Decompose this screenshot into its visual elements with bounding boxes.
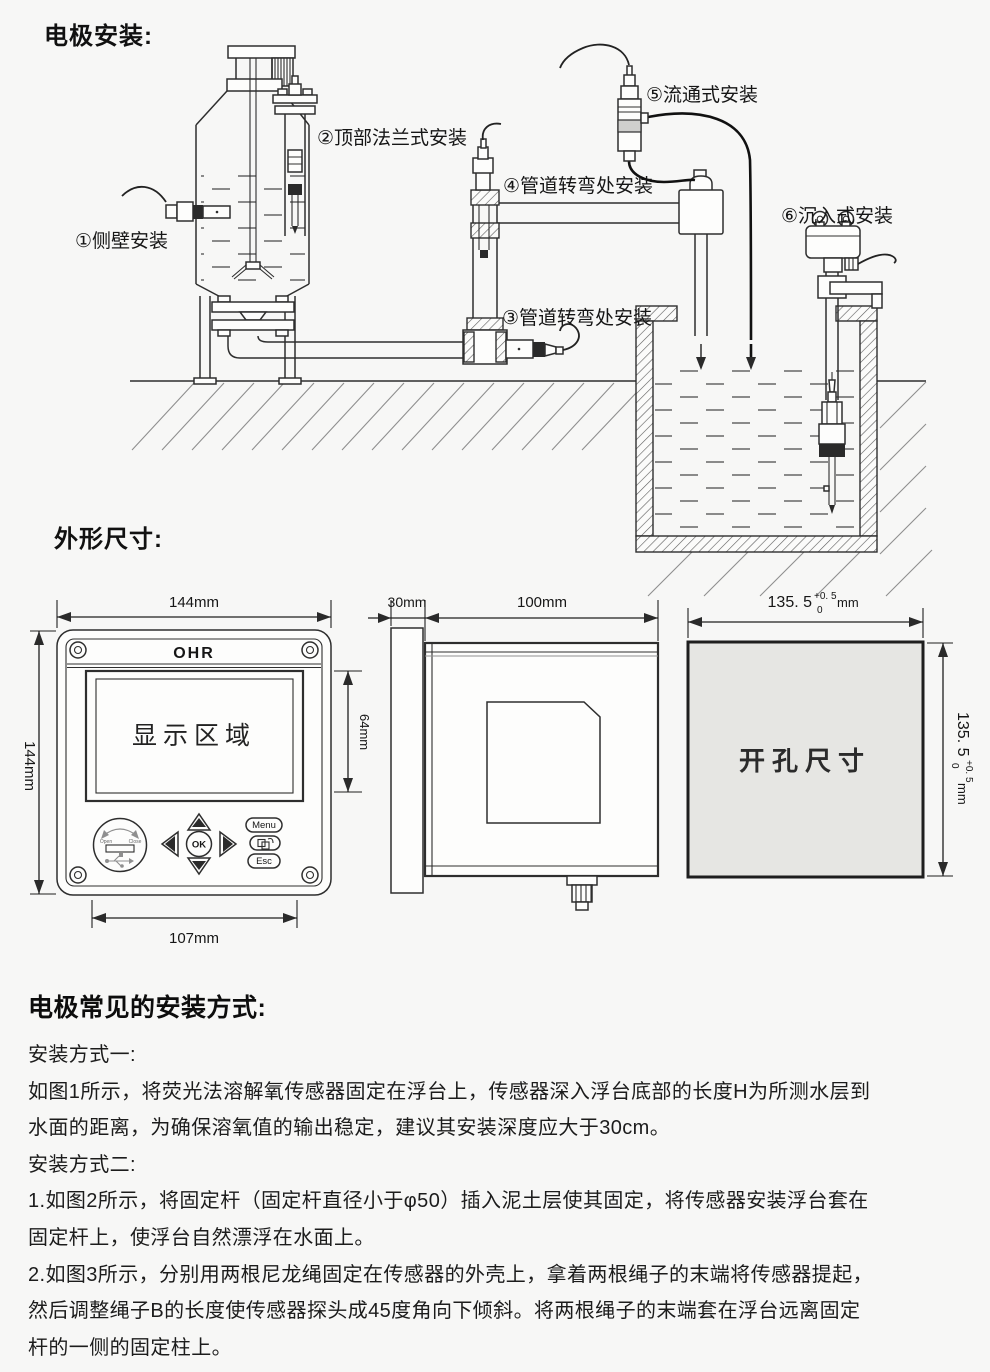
methods-line-6: 固定杆上，使浮台自然漂浮在水面上。 [28,1220,973,1257]
bezel-depth-dim: 30mm [388,594,427,610]
label-pipe-bend-install-3: ③管道转弯处安装 [502,307,652,329]
usb-close-label: Close [129,839,142,845]
label-flow-through-install: ⑤流通式安装 [646,84,758,106]
label-submersible-install: ⑥沉入式安装 [781,205,893,227]
label-top-flange-install: ②顶部法兰式安装 [317,127,467,149]
menu-key-label: Menu [252,820,276,831]
cutout-width-tol-minus: 0 [817,605,823,616]
display-area-label: 显示区域 [132,722,256,750]
cutout-label: 开孔尺寸 [739,747,871,776]
side-view-drawing: 30mm 100mm [368,594,658,910]
front-height-dim: 144mm [21,741,38,791]
cutout-height-tol-minus: 0 [949,763,960,769]
esc-key-label: Esc [256,856,272,867]
methods-line-3: 水面的距离，为确保溶氧值的输出稳定，建议其安装深度应大于30cm。 [28,1110,973,1147]
label-pipe-bend-install-4: ④管道转弯处安装 [503,175,653,197]
methods-line-5: 1.如图2所示，将固定杆（固定杆直径小于φ50）插入泥土层使其固定，将传感器安装… [28,1183,973,1220]
methods-line-8: 然后调整绳子B的长度使传感器探头成45度角向下倾斜。将两根绳子的末端套在浮台远离… [28,1293,973,1330]
display-height-dim: 64mm [357,714,372,750]
cable-gland [567,876,597,910]
front-view-drawing: OHR 显示区域 Open Close [21,594,372,947]
methods-line-4: 安装方式二: [28,1147,973,1184]
methods-line-2: 如图1所示，将荧光法溶解氧传感器固定在浮台上，传感器深入浮台底部的长度H为所测水… [28,1074,973,1111]
methods-section: 电极常见的安装方式: 安装方式一: 如图1所示，将荧光法溶解氧传感器固定在浮台上… [28,988,973,1366]
brand-logo: OHR [173,645,215,662]
front-width-dim: 144mm [169,594,219,611]
ok-key-label: OK [192,840,206,851]
tank-assembly [194,46,463,384]
methods-line-7: 2.如图3所示，分别用两根尼龙绳固定在传感器的外壳上，拿着两根绳子的末端将传感器… [28,1257,973,1294]
cutout-width-unit: mm [837,595,859,610]
methods-line-9: 杆的一侧的固定柱上。 [28,1330,973,1367]
cutout-height-dimension: 135. 5 +0. 5 0 mm [927,643,974,876]
methods-line-1: 安装方式一: [28,1037,973,1074]
cutout-height-value: 135. 5 [954,712,971,757]
cutout-width-dimension: 135. 5 +0. 5 0 mm [688,591,923,638]
keypad-width-dim: 107mm [169,930,219,947]
cutout-width-tol-plus: +0. 5 [814,591,837,602]
cutout-height-unit: mm [955,783,970,805]
pipe-tee-to-pool [679,170,723,370]
cutout-height-tol-plus: +0. 5 [963,760,974,783]
cutout-drawing: 开孔尺寸 135. 5 +0. 5 0 mm 135. 5 +0. 5 0 mm [688,591,974,877]
cutout-width-value: 135. 5 [768,594,813,611]
label-side-wall-install: ①侧壁安装 [75,230,168,252]
technical-diagram: ①侧壁安装 ②顶部法兰式安装 ③管道转弯处安装 ④管道转弯处安装 ⑤流通式安装 … [0,0,990,960]
body-depth-dim: 100mm [517,594,567,611]
side-label-plate [487,702,600,823]
usb-open-label: Open [100,839,112,845]
methods-heading: 电极常见的安装方式: [28,988,973,1024]
